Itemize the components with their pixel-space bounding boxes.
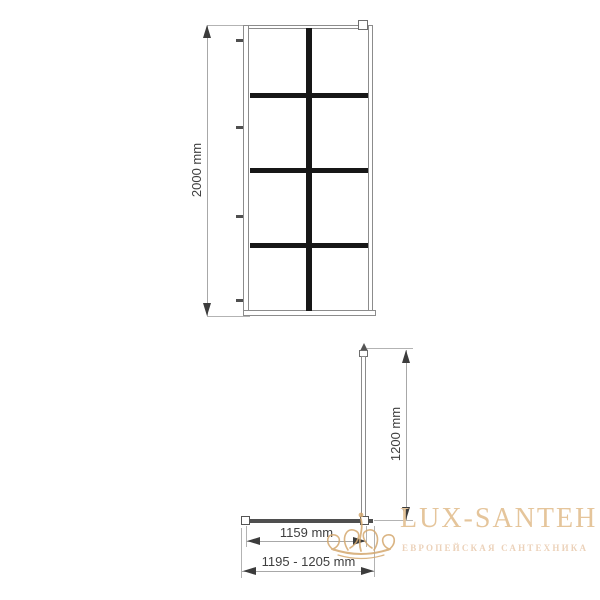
frame-right [368,25,373,316]
brand-tagline: ЕВРОПЕЙСКАЯ САНТЕХНИКА [402,543,584,553]
extension-line-bar-top [367,348,413,349]
height-dimension-label: 2000 mm [190,143,204,197]
dimension-line-bar [406,350,407,520]
wall-anchor-tick [236,126,243,129]
extension-line-top [207,25,245,26]
arrow-down-icon [203,303,211,316]
bar-dimension-label: 1200 mm [389,407,403,461]
wall-anchor-tick [236,299,243,302]
technical-drawing: 2000 mm 1200 mm [0,0,600,600]
arrow-up-icon [203,25,211,38]
wall-anchor-tick [236,215,243,218]
support-bar-clamp [358,20,368,30]
grid-mullion-horizontal [250,243,368,248]
dimension-line-overall-width [242,571,375,572]
arrow-up-icon [402,350,410,363]
brand-wordmark: LUX-SANTEH [400,504,586,534]
wall-profile-end-cap [241,516,250,525]
support-bar [361,356,366,520]
dimension-line-height [207,25,208,316]
grid-mullion-horizontal [250,168,368,173]
wall-anchor-tick [236,39,243,42]
crown-flourish-icon [324,505,398,561]
grid-mullion-horizontal [250,93,368,98]
wall-profile [243,25,249,316]
extension-line-bottom [207,316,250,317]
